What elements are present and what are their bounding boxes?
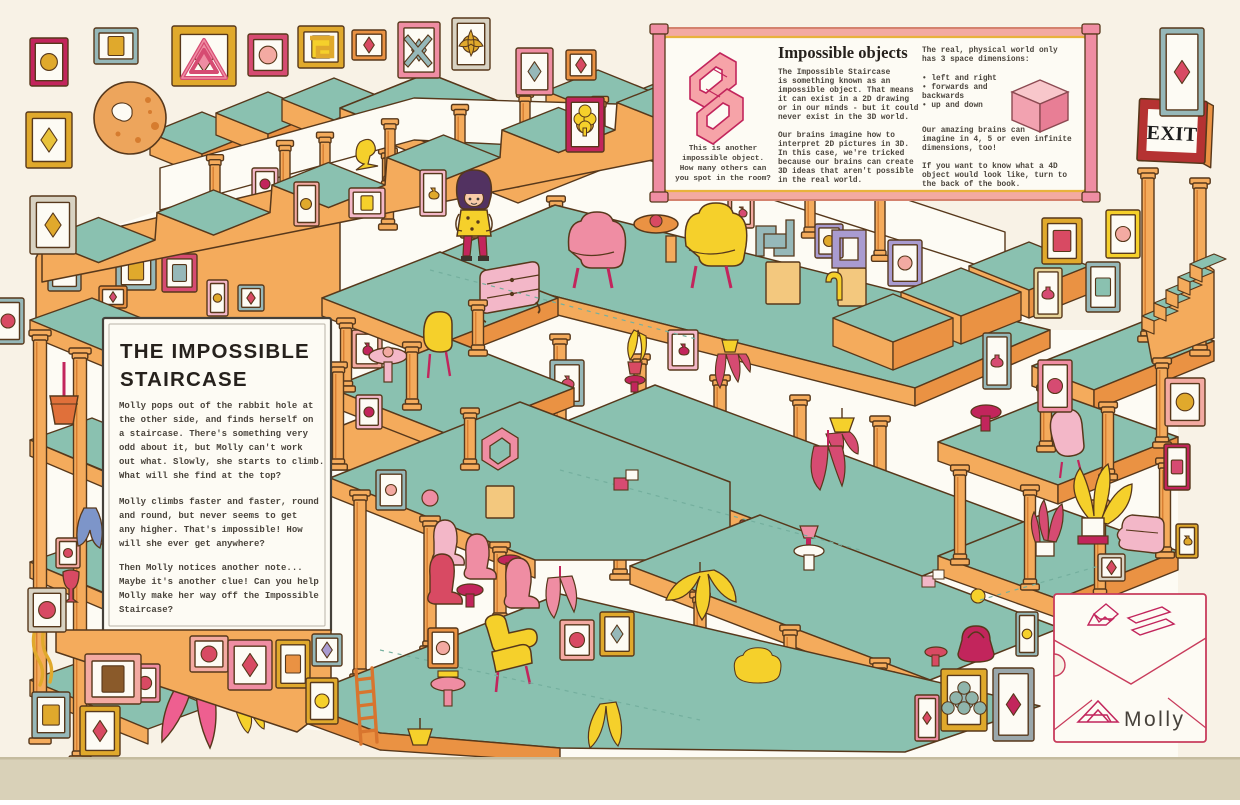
svg-text:odd about it, but Molly can't: odd about it, but Molly can't work xyxy=(119,443,303,453)
svg-text:and round, but never seems to: and round, but never seems to get xyxy=(119,511,297,521)
svg-text:EXIT: EXIT xyxy=(1146,122,1198,146)
svg-text:The Impossible Staircase: The Impossible Staircase xyxy=(778,69,891,77)
svg-text:Maybe it's another clue! Can y: Maybe it's another clue! Can you help xyxy=(119,577,319,587)
svg-text:Molly make her way off the Imp: Molly make her way off the Impossible xyxy=(119,591,319,601)
svg-text:impossible object. That means: impossible object. That means xyxy=(778,87,914,95)
svg-text:Our amazing brains can: Our amazing brains can xyxy=(922,127,1025,135)
svg-text:dimensions, too!: dimensions, too! xyxy=(922,145,997,153)
svg-text:Molly pops out of the rabbit h: Molly pops out of the rabbit hole at xyxy=(119,401,313,411)
svg-text:it can exist in a 2D drawing: it can exist in a 2D drawing xyxy=(778,96,909,104)
svg-text:impossible object.: impossible object. xyxy=(682,155,764,163)
svg-text:This is another: This is another xyxy=(689,145,758,153)
svg-text:Then Molly notices another not: Then Molly notices another note... xyxy=(119,563,303,573)
svg-text:you spot in the room?: you spot in the room? xyxy=(675,175,771,183)
svg-text:or in our minds - but it could: or in our minds - but it could xyxy=(778,105,919,113)
svg-text:THE IMPOSSIBLE: THE IMPOSSIBLE xyxy=(120,340,310,363)
svg-text:any higher. That's impossible!: any higher. That's impossible! How xyxy=(119,525,303,535)
svg-text:never exist in the 3D world.: never exist in the 3D world. xyxy=(778,114,909,122)
svg-text:Molly climbs faster and faster: Molly climbs faster and faster, round xyxy=(119,497,319,507)
svg-text:backwards: backwards xyxy=(922,93,964,101)
svg-text:in the real world.: in the real world. xyxy=(778,177,862,185)
svg-text:• up and down: • up and down xyxy=(922,102,983,110)
svg-text:3D ideas that aren't possible: 3D ideas that aren't possible xyxy=(778,168,914,176)
svg-text:Molly: Molly xyxy=(1124,708,1186,731)
svg-text:Impossible objects: Impossible objects xyxy=(778,43,908,62)
svg-text:The real, physical world only: The real, physical world only xyxy=(922,47,1058,55)
svg-text:• left and right: • left and right xyxy=(922,75,997,83)
svg-text:How many others can: How many others can xyxy=(680,165,767,173)
svg-text:imagine in 4, 5 or even infini: imagine in 4, 5 or even infinite xyxy=(922,136,1072,144)
svg-text:is something known as an: is something known as an xyxy=(778,78,891,86)
svg-text:a staircase. There's something: a staircase. There's something very xyxy=(119,429,309,439)
svg-text:the other side, and finds hers: the other side, and finds herself on xyxy=(119,415,313,425)
svg-text:interpret 2D pictures in 3D.: interpret 2D pictures in 3D. xyxy=(778,141,909,149)
svg-text:STAIRCASE: STAIRCASE xyxy=(120,368,248,391)
svg-text:because our brains can create: because our brains can create xyxy=(778,159,914,167)
svg-text:What will she find at the top?: What will she find at the top? xyxy=(119,471,281,481)
svg-text:the back of the book.: the back of the book. xyxy=(922,181,1020,189)
svg-text:If you want to know what a 4D: If you want to know what a 4D xyxy=(922,163,1058,171)
svg-text:• forwards and: • forwards and xyxy=(922,84,988,92)
svg-text:Staircase?: Staircase? xyxy=(119,605,173,615)
svg-text:In this case, we're tricked: In this case, we're tricked xyxy=(778,150,905,158)
svg-text:Our brains imagine how to: Our brains imagine how to xyxy=(778,132,895,140)
svg-text:object would look like, turn t: object would look like, turn to xyxy=(922,172,1067,180)
svg-text:has 3 space dimensions:: has 3 space dimensions: xyxy=(922,56,1030,64)
svg-text:will she ever get anywhere?: will she ever get anywhere? xyxy=(119,539,265,549)
svg-text:out what. Slowly, she starts t: out what. Slowly, she starts to climb. xyxy=(119,457,324,467)
